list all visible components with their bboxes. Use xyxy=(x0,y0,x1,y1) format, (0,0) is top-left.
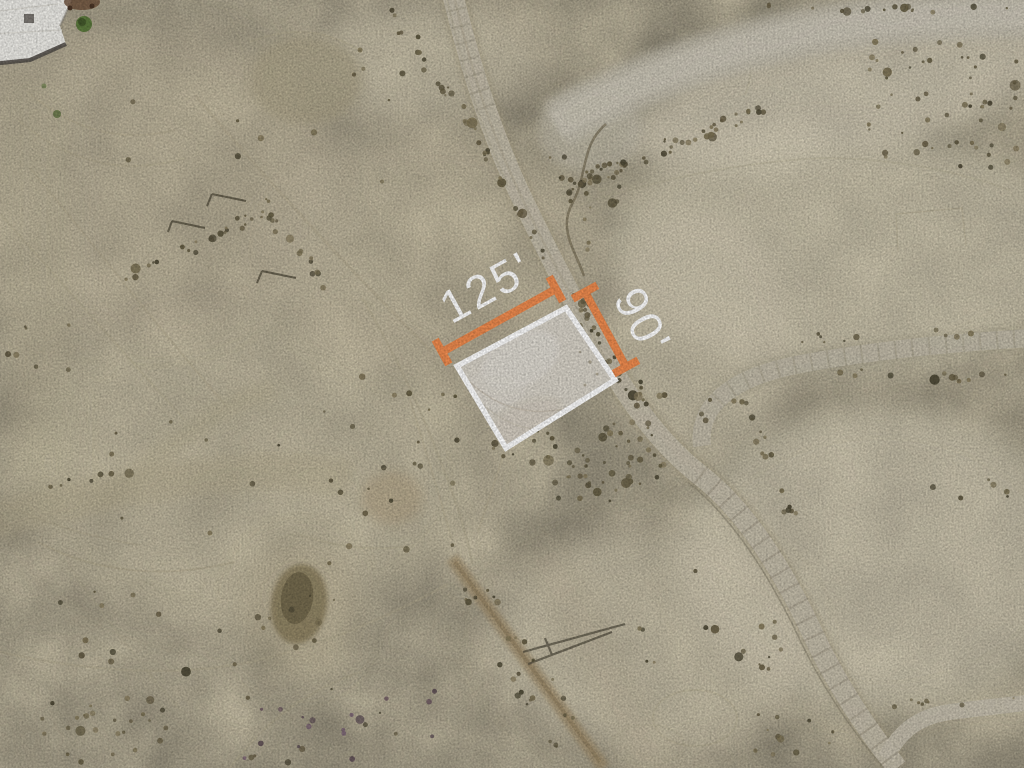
satellite-scene: 125' 90' xyxy=(0,0,1024,768)
grain-light xyxy=(0,0,1024,768)
aerial-photo: 125' 90' xyxy=(0,0,1024,768)
